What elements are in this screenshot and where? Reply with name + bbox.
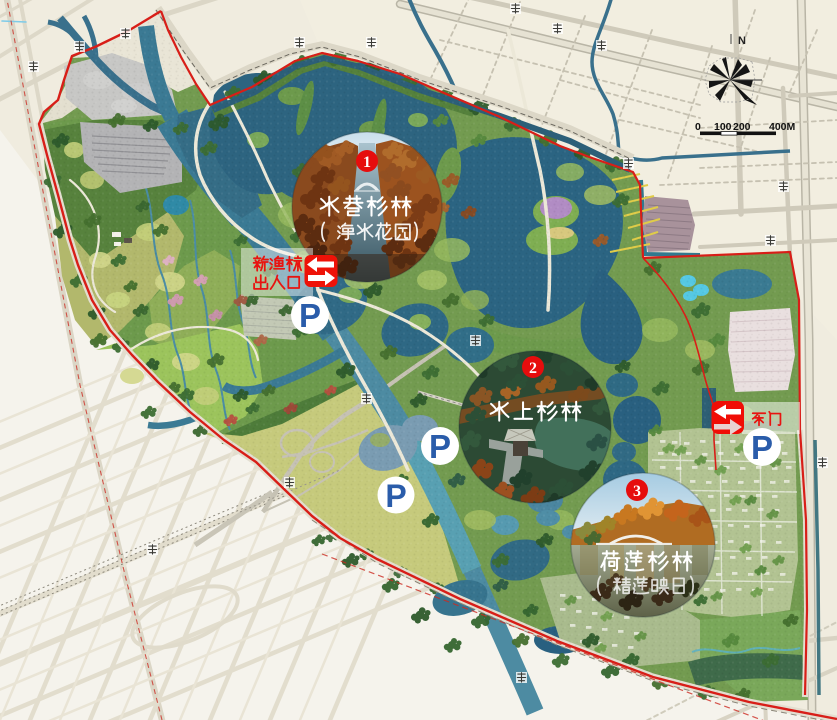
svg-text:P: P xyxy=(299,297,321,334)
svg-text:P: P xyxy=(429,428,451,465)
svg-text:400M: 400M xyxy=(769,121,796,133)
svg-text:N: N xyxy=(738,35,746,47)
svg-text:P: P xyxy=(751,429,773,466)
svg-text:1: 1 xyxy=(363,154,371,171)
svg-text:2: 2 xyxy=(529,360,537,377)
svg-text:3: 3 xyxy=(633,483,641,500)
svg-text:P: P xyxy=(385,478,406,514)
svg-text:0: 0 xyxy=(695,121,701,133)
